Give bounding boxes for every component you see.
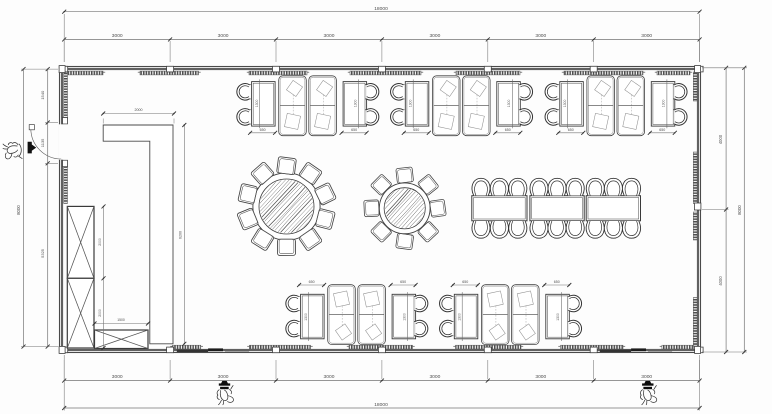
svg-text:8000: 8000 xyxy=(16,205,21,215)
svg-text:3000: 3000 xyxy=(535,33,546,39)
svg-text:2000: 2000 xyxy=(98,238,102,246)
svg-text:1300: 1300 xyxy=(563,100,567,108)
svg-text:1300: 1300 xyxy=(458,313,462,321)
svg-text:1300: 1300 xyxy=(402,313,406,321)
svg-text:1300: 1300 xyxy=(255,100,259,108)
svg-text:1300: 1300 xyxy=(556,313,560,321)
svg-text:1540: 1540 xyxy=(40,90,45,100)
svg-text:18000: 18000 xyxy=(374,6,388,12)
svg-text:1300: 1300 xyxy=(353,100,357,108)
svg-text:650: 650 xyxy=(413,128,419,132)
svg-text:650: 650 xyxy=(568,128,574,132)
svg-text:650: 650 xyxy=(400,280,406,284)
svg-text:650: 650 xyxy=(260,128,266,132)
svg-text:1135: 1135 xyxy=(40,138,45,147)
svg-text:3000: 3000 xyxy=(429,374,440,380)
svg-text:3000: 3000 xyxy=(324,374,335,380)
svg-text:5325: 5325 xyxy=(40,248,45,258)
svg-text:6200: 6200 xyxy=(179,231,183,239)
svg-text:2000: 2000 xyxy=(98,309,102,317)
svg-text:3000: 3000 xyxy=(324,33,335,39)
svg-text:18000: 18000 xyxy=(374,402,388,408)
svg-text:8000: 8000 xyxy=(737,205,742,215)
svg-text:3000: 3000 xyxy=(535,374,546,380)
svg-text:3000: 3000 xyxy=(218,33,229,39)
svg-text:650: 650 xyxy=(462,280,468,284)
svg-text:650: 650 xyxy=(554,280,560,284)
svg-text:650: 650 xyxy=(351,128,357,132)
svg-text:1300: 1300 xyxy=(662,100,666,108)
svg-text:3000: 3000 xyxy=(641,33,652,39)
svg-text:3000: 3000 xyxy=(218,374,229,380)
svg-text:3000: 3000 xyxy=(641,374,652,380)
svg-text:650: 650 xyxy=(505,128,511,132)
svg-text:3000: 3000 xyxy=(112,374,123,380)
svg-text:1300: 1300 xyxy=(507,100,511,108)
svg-text:1300: 1300 xyxy=(304,313,308,321)
svg-text:650: 650 xyxy=(309,280,315,284)
svg-text:3000: 3000 xyxy=(112,33,123,39)
svg-text:4000: 4000 xyxy=(718,276,723,286)
svg-text:3000: 3000 xyxy=(429,33,440,39)
svg-text:1300: 1300 xyxy=(409,100,413,108)
svg-text:1500: 1500 xyxy=(117,318,125,322)
svg-text:650: 650 xyxy=(659,128,665,132)
svg-text:2000: 2000 xyxy=(135,108,143,112)
svg-text:4000: 4000 xyxy=(718,134,723,144)
